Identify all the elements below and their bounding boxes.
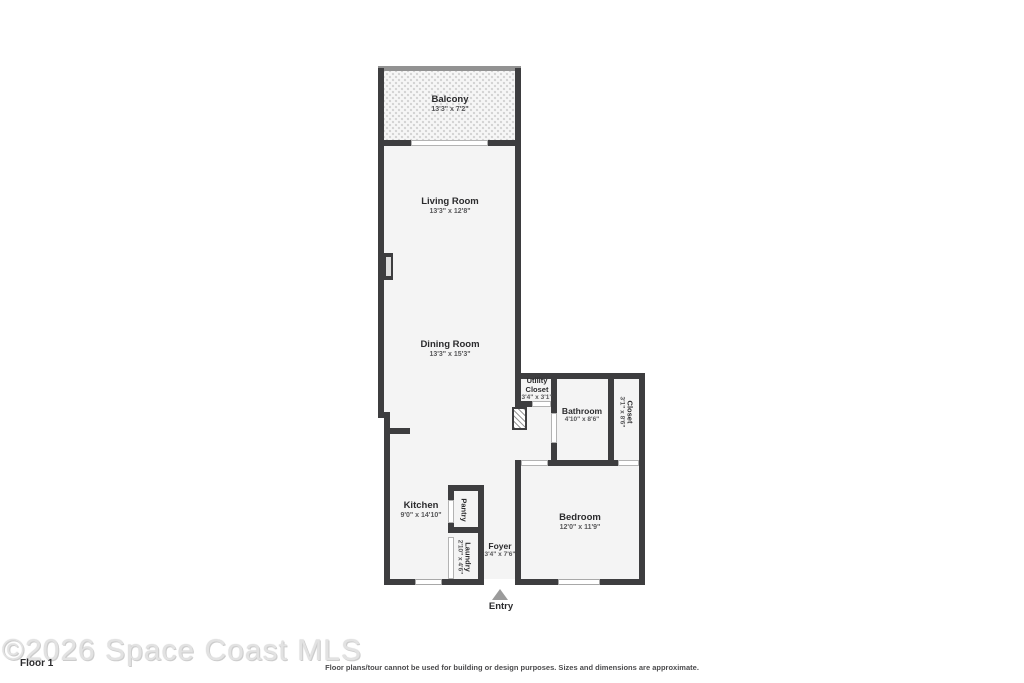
label-utility-closet: Utility Closet 3'4" x 3'1": [522, 376, 553, 402]
disclaimer-text: Floor plans/tour cannot be used for buil…: [0, 663, 1024, 672]
wall-segment: [600, 579, 645, 585]
room-dims: 2'10" x 4'6": [456, 540, 464, 575]
room-dims: 13'3" x 15'3": [420, 350, 479, 359]
bedroom-door-opening: [521, 460, 548, 466]
floor-plan-canvas: Balcony 13'3" x 7'2" Living Room 13'3" x…: [0, 0, 1024, 683]
label-balcony: Balcony 13'3" x 7'2": [431, 94, 468, 114]
wall-segment: [384, 579, 415, 585]
room-name: Laundry: [464, 540, 473, 575]
wall-segment: [478, 485, 484, 585]
room-name: Closet: [626, 397, 635, 428]
closet-door-opening: [618, 460, 639, 466]
wall-segment: [515, 460, 521, 585]
label-foyer: Foyer 3'4" x 7'6": [485, 541, 516, 559]
room-dims: 3'4" x 7'6": [485, 551, 516, 559]
room-dims: 3'1" x 8'6": [618, 397, 626, 428]
wall-segment: [608, 379, 614, 466]
wall-segment: [521, 579, 558, 585]
entry-arrow-icon: [492, 589, 508, 600]
room-dims: 13'3" x 12'8": [421, 207, 479, 216]
wall-column-core: [386, 257, 391, 276]
room-dims: 9'0" x 14'10": [400, 511, 441, 520]
room-dims: 13'3" x 7'2": [431, 105, 468, 114]
door-panel-hatched: [512, 407, 527, 430]
wall-segment: [639, 373, 645, 585]
wall-segment: [378, 68, 384, 146]
room-dims: 4'10" x 8'6": [562, 416, 602, 424]
room-name: Utility Closet: [519, 376, 555, 394]
label-living-room: Living Room 13'3" x 12'8": [421, 196, 479, 216]
wall-segment: [378, 146, 384, 418]
laundry-door-opening: [448, 537, 454, 579]
entry-label: Entry: [489, 601, 513, 612]
room-name: Dining Room: [420, 339, 479, 350]
label-bedroom: Bedroom 12'0" x 11'9": [559, 512, 601, 532]
wall-segment: [515, 146, 521, 407]
room-dims: 3'4" x 3'1": [522, 394, 553, 402]
room-dims: 12'0" x 11'9": [559, 523, 601, 532]
window: [415, 579, 442, 585]
room-name: Balcony: [431, 94, 468, 105]
label-closet: Closet 3'1" x 8'6": [618, 397, 635, 428]
room-name: Living Room: [421, 196, 479, 207]
room-name: Kitchen: [400, 500, 441, 511]
room-name: Bathroom: [562, 406, 602, 416]
room-name: Pantry: [460, 498, 469, 521]
room-name: Bedroom: [559, 512, 601, 523]
balcony-railing: [378, 66, 521, 71]
label-dining-room: Dining Room 13'3" x 15'3": [420, 339, 479, 359]
wall-segment: [448, 491, 454, 500]
label-kitchen: Kitchen 9'0" x 14'10": [400, 500, 441, 520]
pantry-door-opening: [448, 500, 454, 523]
wall-segment: [390, 428, 410, 434]
label-bathroom: Bathroom 4'10" x 8'6": [562, 406, 602, 424]
room-name: Foyer: [485, 541, 516, 551]
wall-segment: [548, 460, 618, 466]
window: [558, 579, 600, 585]
label-pantry: Pantry: [460, 498, 469, 521]
bathroom-door-opening: [551, 413, 557, 443]
label-laundry: Laundry 2'10" x 4'6": [456, 540, 473, 575]
wall-segment: [515, 68, 521, 146]
sliding-door-opening: [411, 140, 488, 146]
wall-segment: [384, 412, 390, 585]
